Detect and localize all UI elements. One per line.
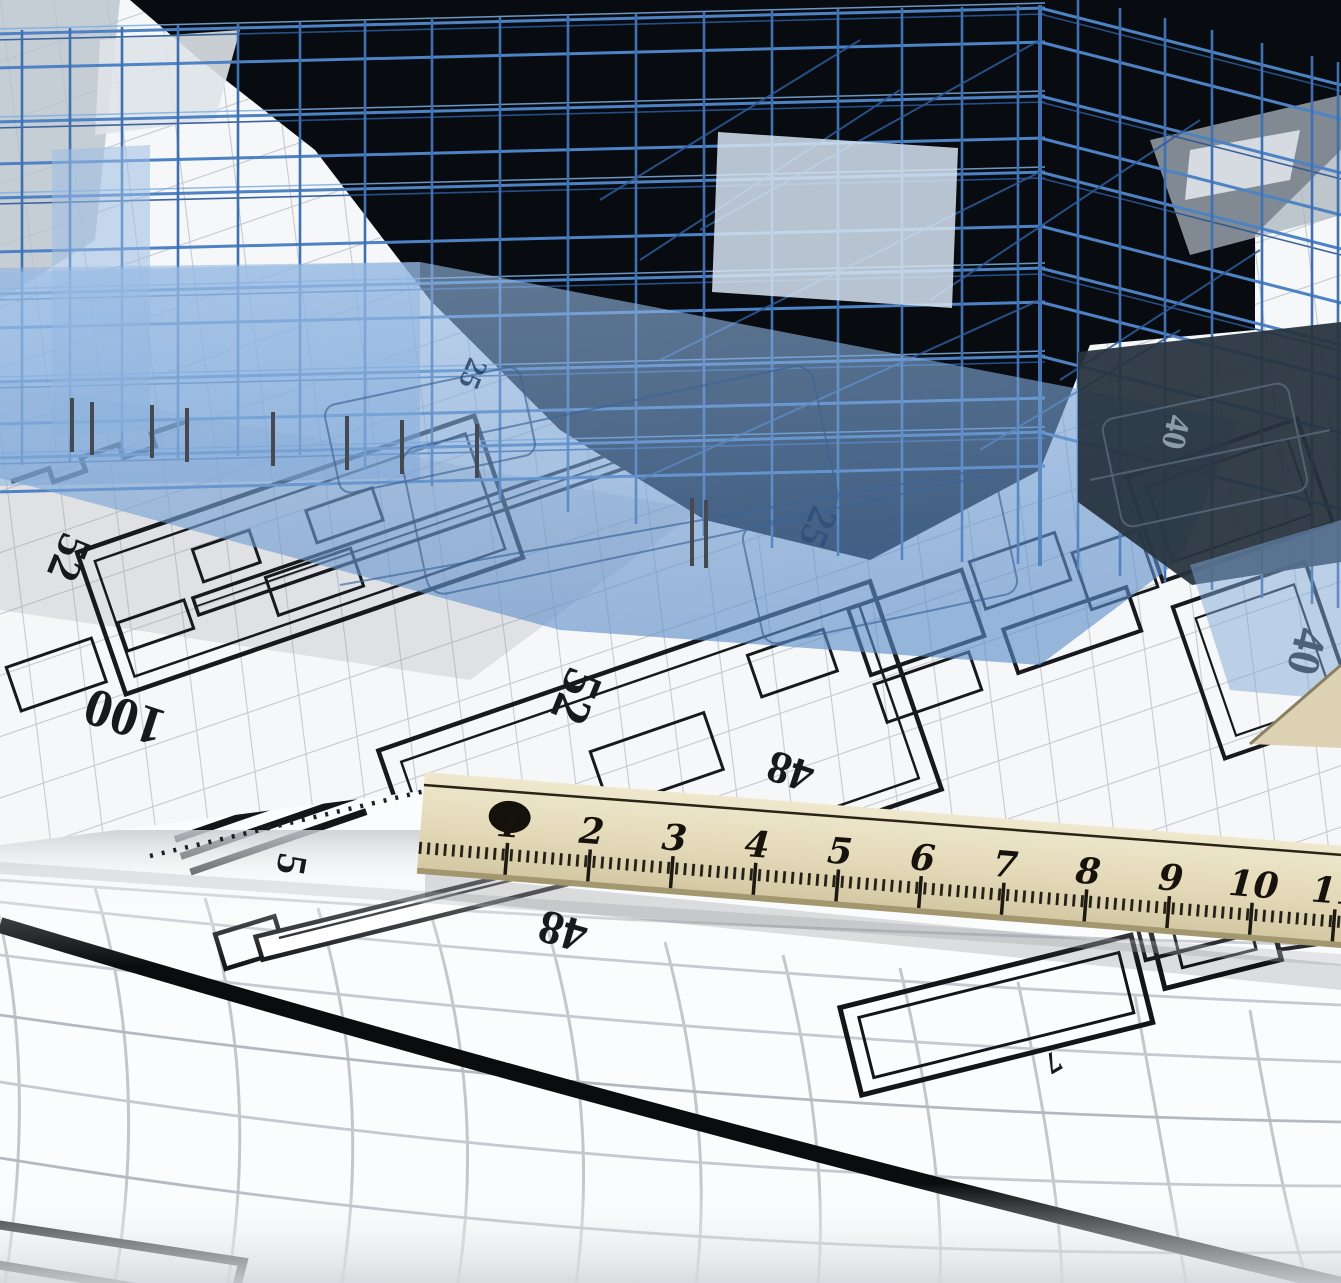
ruler-number-5: 5 xyxy=(826,830,854,874)
glass-box-bright xyxy=(712,132,958,308)
ruler-number-4: 4 xyxy=(743,823,771,867)
ruler-number-7: 7 xyxy=(991,843,1019,887)
ruler-number-3: 3 xyxy=(660,816,688,860)
blueprint-photo-canvas: 52 100 52 48 40 xyxy=(0,0,1341,1283)
ruler-number-8: 8 xyxy=(1073,849,1102,893)
ruler-number-11: 11 xyxy=(1310,869,1341,915)
ruler-number-6: 6 xyxy=(909,836,937,880)
ruler-number-1: 1 xyxy=(495,803,523,847)
ruler-number-2: 2 xyxy=(577,810,606,854)
ruler-number-10: 10 xyxy=(1227,862,1280,908)
blueprint-photo: 52 100 52 48 40 xyxy=(0,0,1341,1283)
ruler-number-9: 9 xyxy=(1157,856,1185,900)
